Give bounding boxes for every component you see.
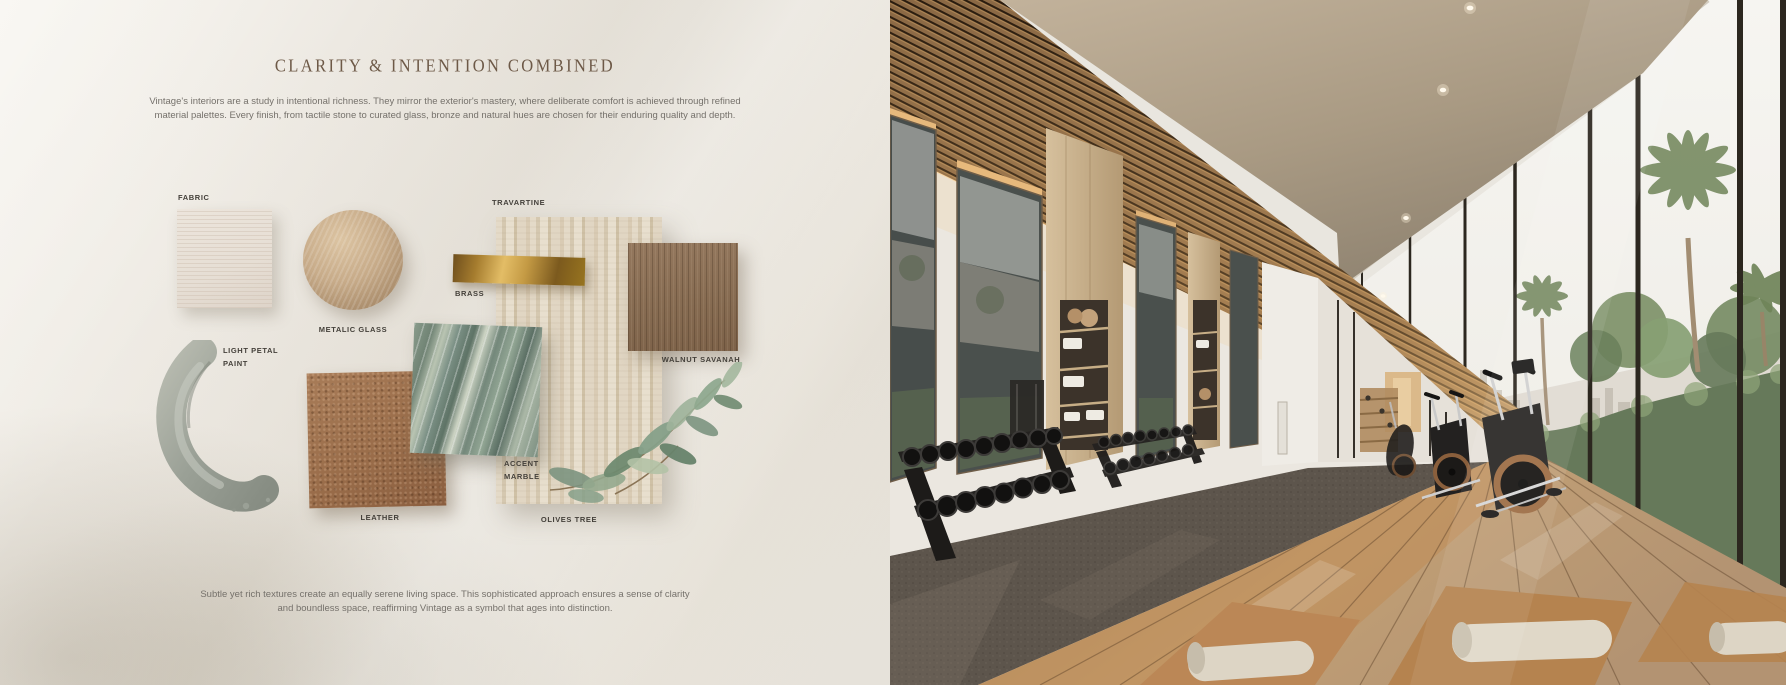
olive-leaves bbox=[547, 362, 746, 505]
gym-photo-svg bbox=[890, 0, 1786, 685]
brochure-spread: { "board": { "title": "CLARITY & INTENTI… bbox=[0, 0, 1786, 685]
leather-label: LEATHER bbox=[330, 513, 430, 522]
intro-paragraph: Vintage's interiors are a study in inten… bbox=[145, 95, 745, 124]
palm-reflection bbox=[976, 286, 1004, 314]
light-petal-paint-label-line1: LIGHT PETAL bbox=[223, 346, 278, 355]
light-petal-paint-label-line2: PAINT bbox=[223, 359, 248, 368]
material-board-page: CLARITY & INTENTION COMBINED Vintage's i… bbox=[0, 0, 890, 685]
bolster-pillow bbox=[1709, 621, 1786, 656]
brass-label: BRASS bbox=[455, 289, 484, 298]
olive-branch bbox=[520, 362, 750, 512]
palm-reflection bbox=[899, 255, 925, 281]
shelving-unit-small bbox=[1188, 232, 1220, 452]
mirror-panel bbox=[890, 108, 936, 482]
metalic-glass-label: METALIC GLASS bbox=[303, 325, 403, 334]
exercise-ball bbox=[1068, 309, 1083, 324]
accent-marble-label-line2: MARBLE bbox=[504, 472, 540, 481]
metalic-glass-swatch bbox=[303, 210, 403, 310]
travartine-label: TRAVARTINE bbox=[492, 198, 545, 207]
far-door bbox=[1278, 402, 1287, 454]
paint-splatter bbox=[232, 508, 236, 512]
mirror-panel bbox=[1230, 250, 1258, 448]
paint-splatter bbox=[266, 498, 270, 502]
olives-tree-label: OLIVES TREE bbox=[536, 515, 602, 524]
walnut-savanah-swatch bbox=[628, 243, 738, 351]
outro-paragraph: Subtle yet rich textures create an equal… bbox=[195, 588, 695, 617]
paint-stroke bbox=[171, 352, 264, 497]
brass-swatch bbox=[453, 254, 586, 286]
shelving-unit bbox=[1046, 128, 1123, 470]
exercise-ball bbox=[1080, 309, 1098, 327]
page-title: CLARITY & INTENTION COMBINED bbox=[145, 55, 745, 77]
accent-marble-label-line1: ACCENT bbox=[504, 459, 539, 468]
walnut-savanah-label: WALNUT SAVANAH bbox=[640, 355, 762, 364]
fabric-swatch bbox=[177, 209, 272, 308]
mirror-panel bbox=[1136, 210, 1176, 460]
gym-photo bbox=[890, 0, 1786, 685]
paint-splatter bbox=[243, 503, 249, 509]
far-end-wall bbox=[1262, 262, 1318, 466]
fabric-label: FABRIC bbox=[178, 193, 210, 202]
